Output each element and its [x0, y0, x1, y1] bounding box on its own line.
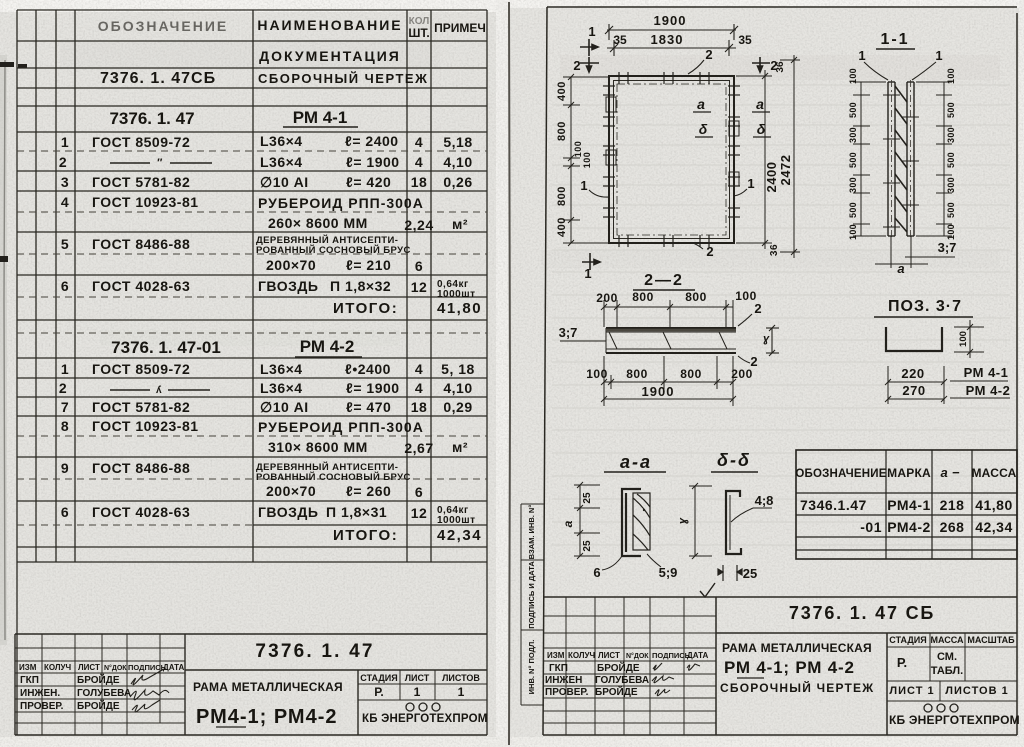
svg-text:ГВОЗДЬ: ГВОЗДЬ	[258, 504, 318, 520]
svg-text:L36×4: L36×4	[260, 154, 303, 170]
svg-text:36: 36	[775, 61, 786, 73]
svg-text:1: 1	[935, 48, 942, 63]
svg-text:4: 4	[415, 361, 423, 377]
svg-text:НАИМЕНОВАНИЕ: НАИМЕНОВАНИЕ	[257, 17, 402, 33]
svg-text:25: 25	[582, 540, 593, 552]
svg-text:300: 300	[848, 177, 858, 193]
svg-text:ГОСТ 8509-72: ГОСТ 8509-72	[92, 361, 190, 377]
svg-text:δ: δ	[699, 121, 708, 137]
svg-text:2400: 2400	[764, 162, 779, 193]
svg-text:РМ 4-2: РМ 4-2	[966, 383, 1011, 398]
svg-text:L36×4: L36×4	[260, 361, 303, 377]
svg-text:2—2: 2—2	[644, 272, 684, 289]
svg-text:ЛИСТ: ЛИСТ	[78, 663, 100, 672]
svg-text:1: 1	[747, 176, 754, 191]
svg-text:7346.1.47: 7346.1.47	[800, 497, 867, 513]
svg-text:ЛИСТ 1: ЛИСТ 1	[889, 685, 934, 697]
svg-text:ℓ= 1900: ℓ= 1900	[346, 154, 400, 170]
svg-text:ГОСТ 10923-81: ГОСТ 10923-81	[92, 418, 199, 434]
svg-text:ℓ= 420: ℓ= 420	[346, 174, 391, 190]
svg-text:4,10: 4,10	[443, 380, 472, 396]
svg-text:ГКП: ГКП	[20, 675, 39, 686]
svg-text:ПРОВЕР.: ПРОВЕР.	[20, 701, 64, 712]
svg-text:ОБОЗНАЧЕНИЕ: ОБОЗНАЧЕНИЕ	[98, 18, 228, 34]
svg-text:100: 100	[586, 367, 608, 381]
svg-text:∅10 АI: ∅10 АI	[260, 174, 309, 190]
svg-text:100: 100	[958, 331, 969, 347]
svg-text:7376. 1. 47: 7376. 1. 47	[109, 109, 194, 128]
svg-text:7: 7	[61, 399, 69, 415]
svg-text:ИНЖЕН.: ИНЖЕН.	[20, 688, 60, 699]
svg-text:ЛИСТ: ЛИСТ	[405, 673, 430, 683]
svg-text:ЛИСТ: ЛИСТ	[598, 651, 620, 660]
svg-text:6: 6	[593, 565, 600, 580]
svg-text:25: 25	[582, 492, 593, 504]
svg-text:41,80: 41,80	[437, 300, 482, 317]
svg-text:КБ ЭНЕРГОТЕХПРОМ: КБ ЭНЕРГОТЕХПРОМ	[889, 713, 1020, 727]
svg-text:4,10: 4,10	[443, 154, 472, 170]
svg-text:РМ4-1; РМ4-2: РМ4-1; РМ4-2	[196, 706, 338, 728]
svg-text:БРОЙДЕ: БРОЙДЕ	[77, 699, 120, 712]
svg-text:L36×4: L36×4	[260, 133, 303, 149]
svg-text:4: 4	[415, 380, 423, 396]
svg-text:ГКП: ГКП	[549, 663, 568, 674]
svg-text:100: 100	[946, 68, 956, 84]
svg-text:РОВАННЫЙ СОСНОВЫЙ БРУС: РОВАННЫЙ СОСНОВЫЙ БРУС	[256, 471, 411, 483]
svg-text:7376. 1. 47-01: 7376. 1. 47-01	[111, 338, 221, 357]
svg-text:500: 500	[848, 102, 858, 118]
svg-text:РАМА МЕТАЛЛИЧЕСКАЯ: РАМА МЕТАЛЛИЧЕСКАЯ	[722, 641, 872, 655]
svg-text:МАССА: МАССА	[930, 635, 964, 645]
svg-text:270: 270	[902, 383, 925, 398]
svg-text:220: 220	[901, 366, 924, 381]
svg-text:ИТОГО:: ИТОГО:	[333, 300, 398, 317]
svg-text:1000шт: 1000шт	[437, 289, 475, 300]
svg-text:5: 5	[61, 236, 69, 252]
svg-text:500: 500	[848, 202, 858, 218]
svg-text:300: 300	[848, 127, 858, 143]
svg-text:100: 100	[946, 224, 956, 240]
svg-text:ПОДПИСЬ И ДАТА: ПОДПИСЬ И ДАТА	[527, 561, 536, 629]
svg-text:100: 100	[582, 152, 592, 169]
svg-text:ГОСТ 8486-88: ГОСТ 8486-88	[92, 460, 190, 476]
svg-text:П 1,8×31: П 1,8×31	[326, 504, 387, 520]
svg-text:36: 36	[769, 244, 780, 256]
svg-text:МАССА: МАССА	[971, 466, 1016, 480]
svg-text:200: 200	[596, 291, 618, 305]
svg-text:ПРОВЕР.: ПРОВЕР.	[545, 687, 589, 698]
svg-text:м²: м²	[452, 216, 468, 232]
svg-text:5;9: 5;9	[659, 565, 678, 580]
svg-text:ПОДПИСЬ: ПОДПИСЬ	[652, 651, 691, 660]
svg-text:ПРИМЕЧ: ПРИМЕЧ	[434, 21, 486, 35]
svg-text:Р.: Р.	[374, 685, 384, 699]
svg-text:0,26: 0,26	[443, 174, 472, 190]
svg-text:12: 12	[411, 505, 428, 521]
svg-text:ɣ: ɣ	[677, 517, 689, 524]
svg-text:ЛИСТОВ: ЛИСТОВ	[442, 673, 480, 683]
svg-text:2: 2	[706, 244, 713, 259]
svg-text:2: 2	[59, 380, 67, 396]
svg-text:200: 200	[731, 367, 753, 381]
svg-text:0,29: 0,29	[443, 399, 472, 415]
svg-text:2,67: 2,67	[404, 440, 433, 456]
svg-text:L36×4: L36×4	[260, 380, 303, 396]
svg-text:МАРКА: МАРКА	[887, 466, 931, 480]
svg-text:а: а	[697, 96, 705, 112]
svg-text:ГОСТ 8486-88: ГОСТ 8486-88	[92, 236, 190, 252]
svg-text:ОБОЗНАЧЕНИЕ: ОБОЗНАЧЕНИЕ	[795, 468, 886, 480]
svg-text:1: 1	[580, 178, 587, 193]
svg-text:3;7: 3;7	[938, 240, 957, 255]
svg-text:260× 8600 ММ: 260× 8600 ММ	[268, 215, 368, 231]
svg-text:218: 218	[940, 497, 965, 513]
svg-text:ГОСТ 8509-72: ГОСТ 8509-72	[92, 134, 190, 150]
svg-text:ГОСТ 10923-81: ГОСТ 10923-81	[92, 194, 199, 210]
svg-text:3: 3	[61, 174, 69, 190]
svg-text:500: 500	[946, 202, 956, 218]
svg-text:400: 400	[556, 81, 568, 101]
svg-text:ℓ= 2400: ℓ= 2400	[345, 133, 399, 149]
svg-text:4: 4	[415, 154, 423, 170]
svg-text:∅10 АI: ∅10 АI	[260, 399, 309, 415]
svg-text:1: 1	[584, 266, 591, 281]
svg-text:РМ 4-1; РМ 4-2: РМ 4-1; РМ 4-2	[724, 658, 855, 677]
svg-text:ГОСТ 4028-63: ГОСТ 4028-63	[92, 504, 190, 520]
svg-text:42,34: 42,34	[437, 527, 482, 544]
svg-text:8: 8	[61, 418, 69, 434]
svg-text:400: 400	[556, 217, 568, 237]
svg-text:ℓ= 210: ℓ= 210	[346, 257, 391, 273]
svg-text:800: 800	[556, 186, 568, 206]
svg-text:310× 8600 ММ: 310× 8600 ММ	[268, 439, 368, 455]
svg-text:35: 35	[738, 33, 752, 47]
svg-text:РМ4-1: РМ4-1	[887, 497, 931, 513]
svg-text:7376. 1. 47: 7376. 1. 47	[255, 641, 374, 662]
svg-text:ПОЗ. 3·7: ПОЗ. 3·7	[888, 298, 962, 315]
svg-text:ГОСТ 5781-82: ГОСТ 5781-82	[92, 399, 190, 415]
svg-text:6: 6	[61, 278, 69, 294]
svg-text:ВЗАМ. ИНВ. N°: ВЗАМ. ИНВ. N°	[527, 505, 536, 560]
svg-text:Р.: Р.	[897, 655, 907, 670]
svg-text:ИНВ. N° ПОДЛ.: ИНВ. N° ПОДЛ.	[527, 640, 536, 695]
svg-text:200×70: 200×70	[266, 257, 316, 273]
svg-text:РМ 4-1: РМ 4-1	[964, 365, 1009, 380]
svg-text:ɣ: ɣ	[763, 333, 770, 345]
svg-text:9: 9	[61, 460, 69, 476]
svg-text:ШТ.: ШТ.	[408, 26, 429, 40]
svg-text:а: а	[897, 261, 904, 276]
svg-text:ИЗМ: ИЗМ	[19, 663, 37, 672]
svg-text:7376. 1. 47СБ: 7376. 1. 47СБ	[100, 70, 216, 87]
svg-text:800: 800	[626, 367, 648, 381]
svg-text:6: 6	[415, 484, 423, 500]
svg-text:800: 800	[556, 121, 568, 141]
svg-text:800: 800	[685, 290, 707, 304]
svg-text:ИНЖЕН: ИНЖЕН	[545, 675, 582, 686]
svg-text:ГВОЗДЬ: ГВОЗДЬ	[258, 278, 318, 294]
svg-text:1900: 1900	[642, 384, 675, 399]
svg-text:РМ4-2: РМ4-2	[887, 519, 931, 535]
svg-text:ℓ= 1900: ℓ= 1900	[346, 380, 400, 396]
svg-text:7376. 1. 47 СБ: 7376. 1. 47 СБ	[789, 603, 935, 623]
svg-text:ГОЛУБЕВА: ГОЛУБЕВА	[77, 688, 131, 699]
svg-text:а: а	[561, 520, 575, 527]
svg-text:1: 1	[858, 48, 865, 63]
svg-text:500: 500	[946, 102, 956, 118]
svg-text:1: 1	[414, 685, 421, 699]
svg-text:N°ДОК: N°ДОК	[104, 664, 127, 672]
svg-text:12: 12	[411, 279, 428, 295]
svg-text:П 1,8×32: П 1,8×32	[330, 278, 391, 294]
svg-text:1000шт: 1000шт	[437, 515, 475, 526]
svg-text:ДОКУМЕНТАЦИЯ: ДОКУМЕНТАЦИЯ	[259, 48, 401, 64]
svg-text:СТАДИЯ: СТАДИЯ	[360, 673, 397, 683]
svg-text:δ-δ: δ-δ	[717, 450, 751, 470]
svg-text:1-1: 1-1	[880, 31, 909, 48]
svg-text:18: 18	[411, 399, 428, 415]
svg-text:СБОРОЧНЫЙ ЧЕРТЕЖ: СБОРОЧНЫЙ ЧЕРТЕЖ	[720, 680, 874, 695]
svg-text:800: 800	[632, 290, 654, 304]
svg-text:41,80: 41,80	[975, 497, 1013, 513]
svg-text:5,18: 5,18	[443, 134, 472, 150]
svg-text:СМ.: СМ.	[937, 651, 957, 663]
svg-text:а-а: а-а	[620, 452, 652, 472]
svg-text:″: ″	[157, 157, 163, 169]
svg-text:1900: 1900	[654, 13, 687, 28]
svg-text:ʎ: ʎ	[156, 385, 162, 396]
svg-text:РУБЕРОИД РПП-300А: РУБЕРОИД РПП-300А	[258, 419, 424, 435]
svg-text:БРОЙДЕ: БРОЙДЕ	[595, 685, 638, 698]
svg-text:1: 1	[458, 685, 465, 699]
svg-text:КОЛУЧ: КОЛУЧ	[44, 663, 71, 672]
svg-text:ГОСТ 4028-63: ГОСТ 4028-63	[92, 278, 190, 294]
svg-text:2: 2	[705, 47, 712, 62]
svg-text:4: 4	[415, 134, 423, 150]
svg-text:РУБЕРОИД РПП-300А: РУБЕРОИД РПП-300А	[258, 195, 424, 211]
svg-text:5, 18: 5, 18	[441, 361, 475, 377]
svg-text:35: 35	[613, 33, 627, 47]
svg-text:2: 2	[754, 301, 761, 316]
svg-text:2472: 2472	[778, 155, 793, 186]
svg-text:ℓ= 470: ℓ= 470	[346, 399, 391, 415]
svg-text:6: 6	[61, 504, 69, 520]
svg-text:ГОЛУБЕВА: ГОЛУБЕВА	[595, 675, 649, 686]
svg-text:а: а	[756, 96, 764, 112]
svg-text:ИЗМ: ИЗМ	[547, 651, 565, 660]
svg-text:3;7: 3;7	[559, 325, 578, 340]
svg-text:δ: δ	[757, 121, 766, 137]
svg-text:а −: а −	[940, 465, 959, 480]
svg-text:25: 25	[743, 566, 757, 581]
svg-text:300: 300	[946, 177, 956, 193]
svg-text:2: 2	[59, 154, 67, 170]
svg-text:1: 1	[588, 24, 595, 39]
svg-text:268: 268	[940, 519, 965, 535]
svg-text:МАСШТАБ: МАСШТАБ	[967, 635, 1015, 645]
svg-text:200×70: 200×70	[266, 483, 316, 499]
svg-text:1: 1	[61, 361, 69, 377]
svg-text:500: 500	[848, 152, 858, 168]
svg-text:18: 18	[411, 174, 428, 190]
svg-text:-01: -01	[860, 519, 882, 535]
svg-text:КБ ЭНЕРГОТЕХПРОМ: КБ ЭНЕРГОТЕХПРОМ	[362, 713, 488, 725]
svg-text:ЛИСТОВ 1: ЛИСТОВ 1	[945, 685, 1008, 697]
svg-text:ℓ= 260: ℓ= 260	[346, 483, 391, 499]
svg-text:ИТОГО:: ИТОГО:	[333, 527, 398, 544]
svg-text:300: 300	[946, 127, 956, 143]
svg-text:ДАТА: ДАТА	[687, 651, 708, 660]
svg-text:РОВАННЫЙ СОСНОВЫЙ БРУС: РОВАННЫЙ СОСНОВЫЙ БРУС	[256, 244, 411, 256]
svg-text:100: 100	[848, 224, 858, 240]
svg-text:1830: 1830	[651, 32, 684, 47]
svg-text:2: 2	[573, 58, 580, 73]
svg-text:1: 1	[61, 134, 69, 150]
svg-text:6: 6	[415, 258, 423, 274]
svg-text:ℓ•2400: ℓ•2400	[345, 361, 391, 377]
svg-text:БРОЙДЕ: БРОЙДЕ	[77, 673, 120, 686]
svg-text:800: 800	[680, 367, 702, 381]
svg-text:РМ 4-2: РМ 4-2	[300, 337, 355, 356]
svg-text:2,24: 2,24	[404, 217, 433, 233]
svg-text:100: 100	[848, 68, 858, 84]
svg-text:4;8: 4;8	[755, 493, 774, 508]
svg-text:м²: м²	[452, 439, 468, 455]
svg-text:42,34: 42,34	[975, 519, 1013, 535]
svg-text:4: 4	[61, 194, 69, 210]
svg-text:N°ДОК: N°ДОК	[626, 652, 649, 660]
svg-text:РАМА МЕТАЛЛИЧЕСКАЯ: РАМА МЕТАЛЛИЧЕСКАЯ	[193, 680, 343, 694]
svg-text:ДАТА: ДАТА	[163, 663, 184, 672]
svg-text:500: 500	[946, 152, 956, 168]
svg-text:ГОСТ 5781-82: ГОСТ 5781-82	[92, 174, 190, 190]
svg-text:ТАБЛ.: ТАБЛ.	[931, 665, 963, 677]
svg-text:СБОРОЧНЫЙ ЧЕРТЕЖ: СБОРОЧНЫЙ ЧЕРТЕЖ	[258, 71, 428, 86]
svg-text:РМ 4-1: РМ 4-1	[293, 108, 348, 127]
svg-text:СТАДИЯ: СТАДИЯ	[889, 635, 926, 645]
svg-text:КОЛУЧ: КОЛУЧ	[568, 651, 595, 660]
svg-text:БРОЙДЕ: БРОЙДЕ	[597, 661, 640, 674]
